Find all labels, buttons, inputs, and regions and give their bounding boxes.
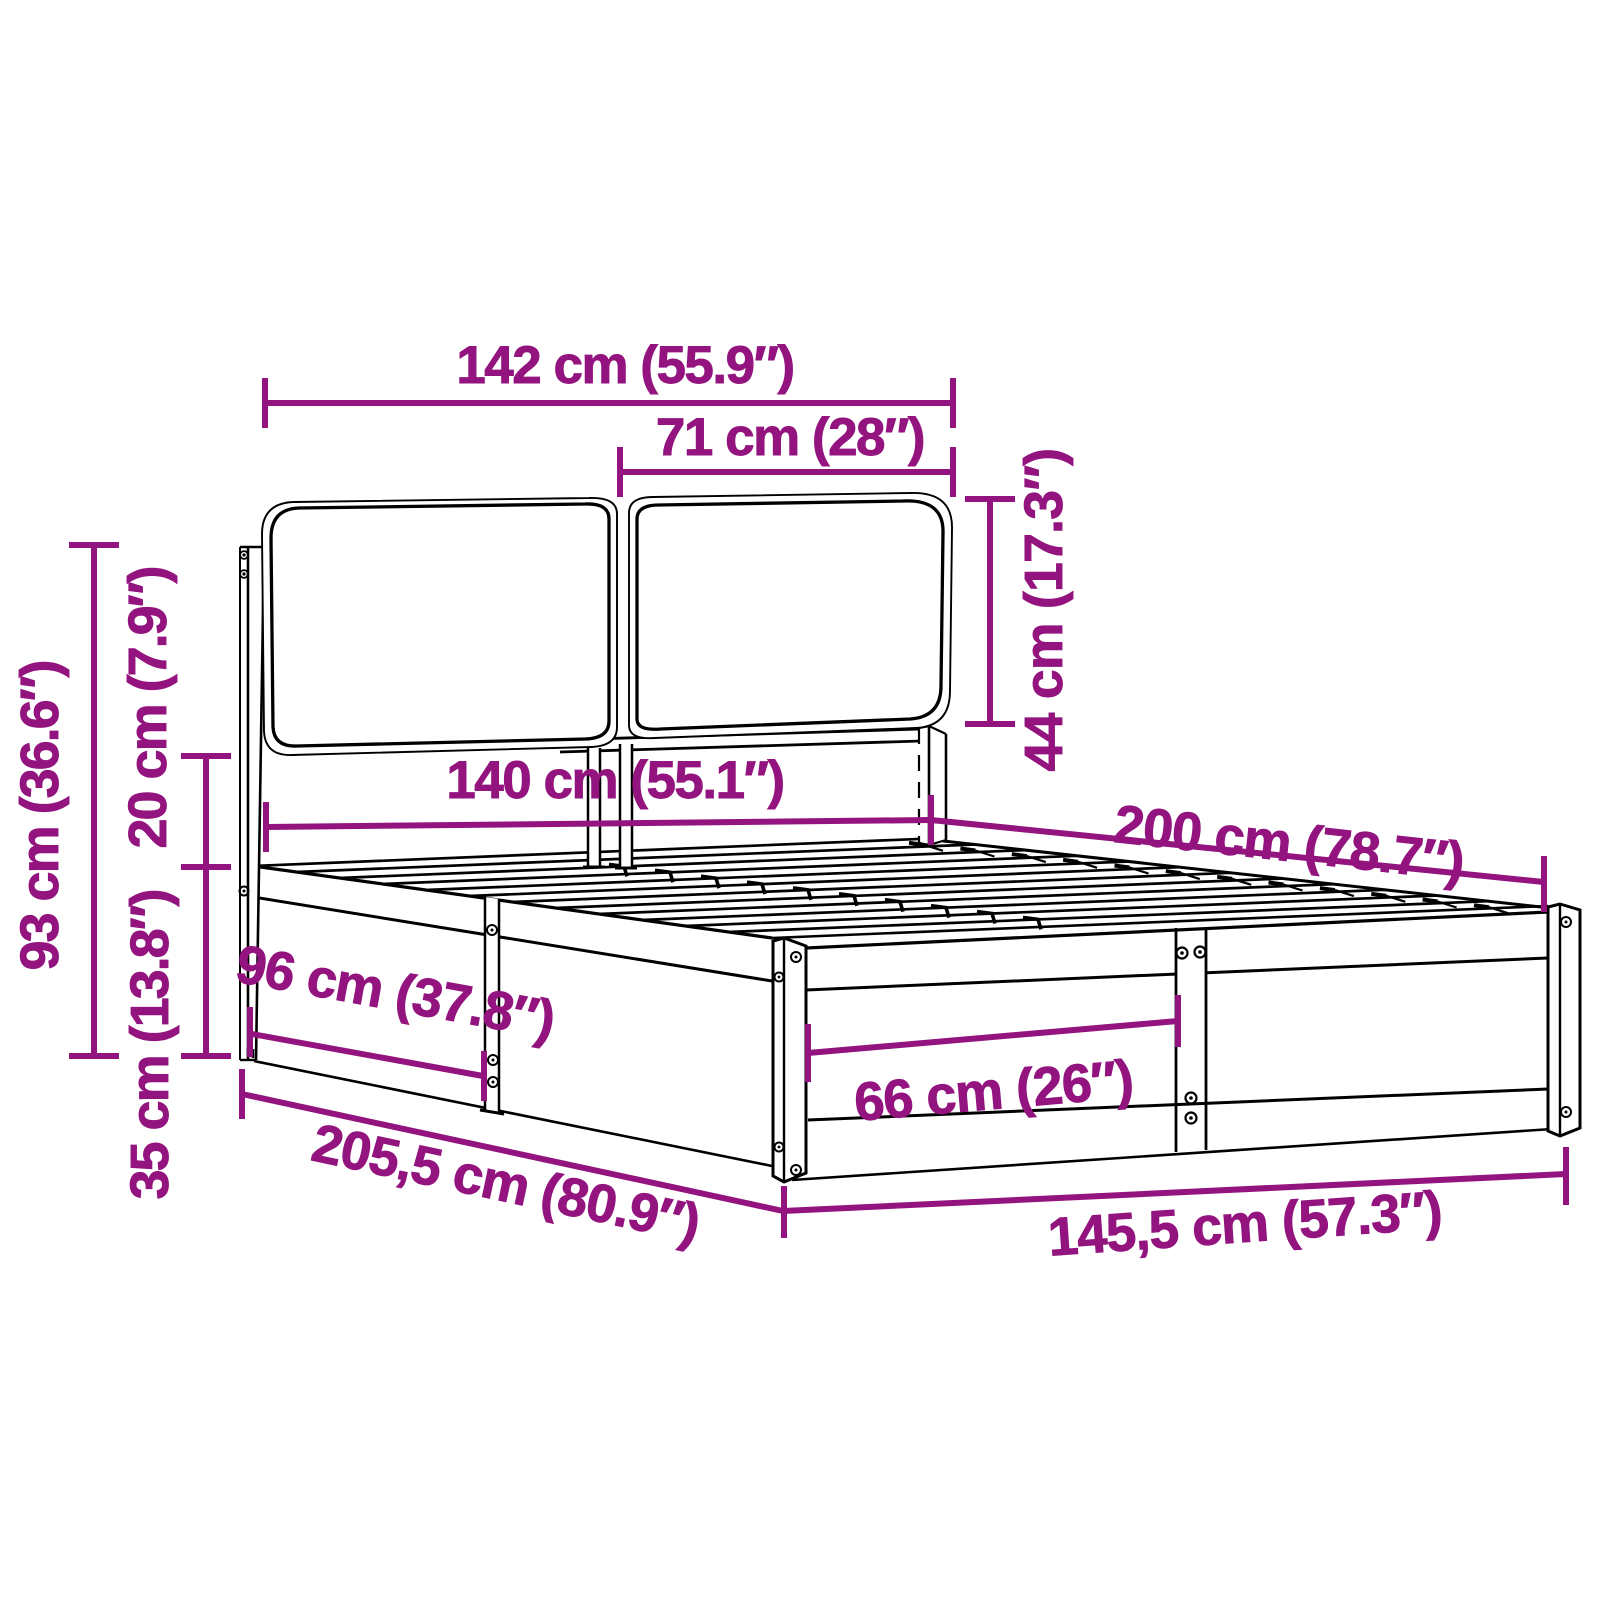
svg-text:93 cm (36.6″): 93 cm (36.6″) [10, 661, 70, 970]
svg-text:142 cm (55.9″): 142 cm (55.9″) [456, 336, 793, 395]
svg-text:71 cm (28″): 71 cm (28″) [656, 408, 924, 467]
svg-text:35 cm (13.8″): 35 cm (13.8″) [120, 890, 180, 1199]
svg-text:44 cm (17.3″): 44 cm (17.3″) [1015, 449, 1074, 772]
svg-text:140 cm (55.1″): 140 cm (55.1″) [446, 751, 783, 810]
svg-text:20 cm (7.9″): 20 cm (7.9″) [118, 567, 178, 848]
